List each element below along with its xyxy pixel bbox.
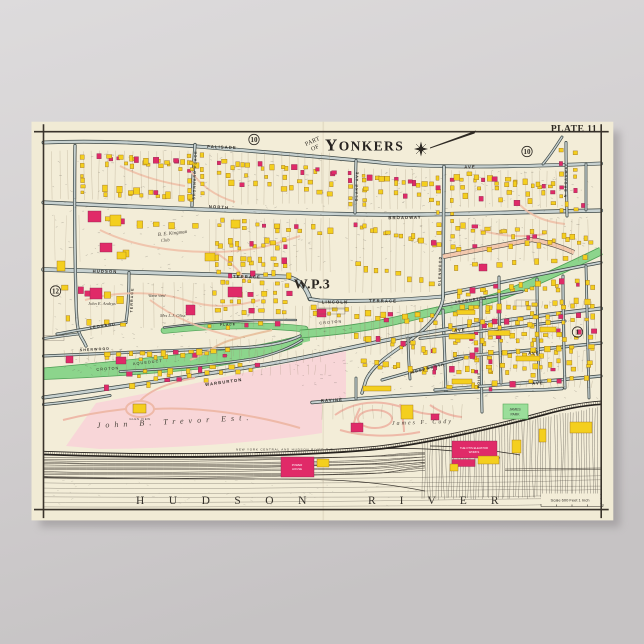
svg-text:YONKERS: YONKERS — [325, 136, 404, 155]
svg-text:JAMES: JAMES — [509, 408, 521, 412]
svg-text:10: 10 — [251, 136, 259, 144]
svg-text:PLATE 11: PLATE 11 — [551, 124, 597, 134]
svg-text:12: 12 — [52, 288, 60, 296]
svg-text:Mrs L.J. Oliss: Mrs L.J. Oliss — [159, 313, 186, 318]
svg-text:AVE: AVE — [528, 350, 540, 356]
svg-text:BROADWAY: BROADWAY — [388, 215, 421, 221]
svg-text:WORKS: WORKS — [469, 450, 480, 454]
svg-text:PLACE: PLACE — [220, 322, 236, 327]
svg-text:HOUSE: HOUSE — [292, 467, 302, 471]
svg-text:AVE: AVE — [454, 327, 466, 333]
svg-text:TERRACE: TERRACE — [369, 299, 397, 304]
svg-text:PALISADE: PALISADE — [207, 144, 237, 150]
svg-text:NEW YORK CENTRAL AND HUDSON RI: NEW YORK CENTRAL AND HUDSON RIVER R.R. — [236, 448, 335, 452]
svg-text:HUDSON: HUDSON — [93, 269, 118, 274]
svg-text:Scale 600 Feet 1 Inch: Scale 600 Feet 1 Inch — [551, 498, 590, 503]
svg-text:W.P.3: W.P.3 — [294, 277, 330, 292]
svg-text:TERRACE: TERRACE — [233, 274, 261, 279]
svg-text:GLEN VIEW: GLEN VIEW — [129, 417, 150, 421]
svg-text:NORTH: NORTH — [209, 204, 230, 210]
svg-text:POINT: POINT — [477, 372, 482, 389]
svg-text:John E. Andrus: John E. Andrus — [88, 301, 116, 306]
svg-text:AVE: AVE — [464, 165, 476, 170]
svg-text:“Blene View”: “Blene View” — [148, 294, 166, 298]
svg-text:PARK: PARK — [511, 413, 521, 417]
svg-text:10: 10 — [524, 148, 532, 156]
svg-text:RIVER: RIVER — [368, 495, 523, 507]
svg-text:AVE: AVE — [532, 380, 544, 386]
svg-text:Club: Club — [161, 237, 171, 243]
svg-text:HUDSON: HUDSON — [136, 495, 331, 507]
svg-text:LINCOLN: LINCOLN — [322, 300, 348, 305]
svg-text:1: 1 — [576, 329, 580, 337]
